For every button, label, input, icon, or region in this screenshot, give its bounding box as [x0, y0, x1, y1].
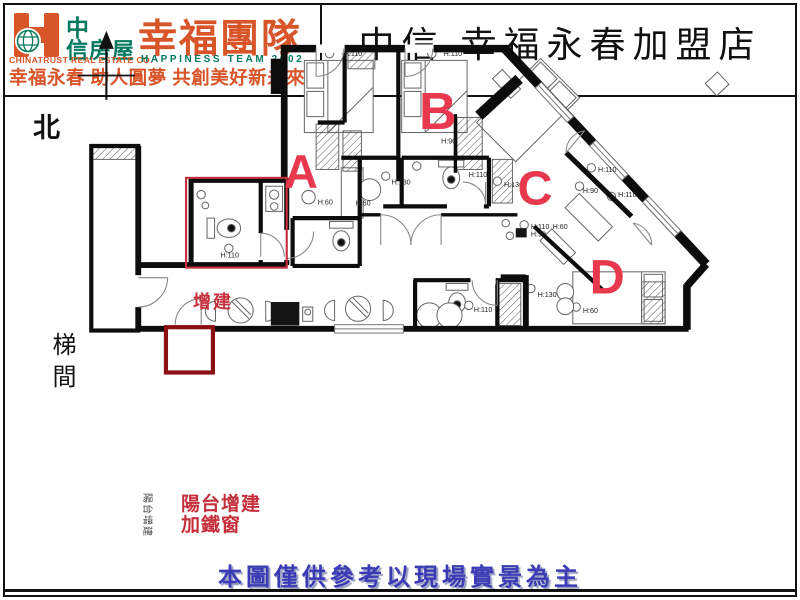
page-frame [3, 3, 797, 597]
flyer: 中 信房屋 CHINATRUST REAL ESTATE CO. 幸福團隊 HA… [0, 0, 800, 600]
